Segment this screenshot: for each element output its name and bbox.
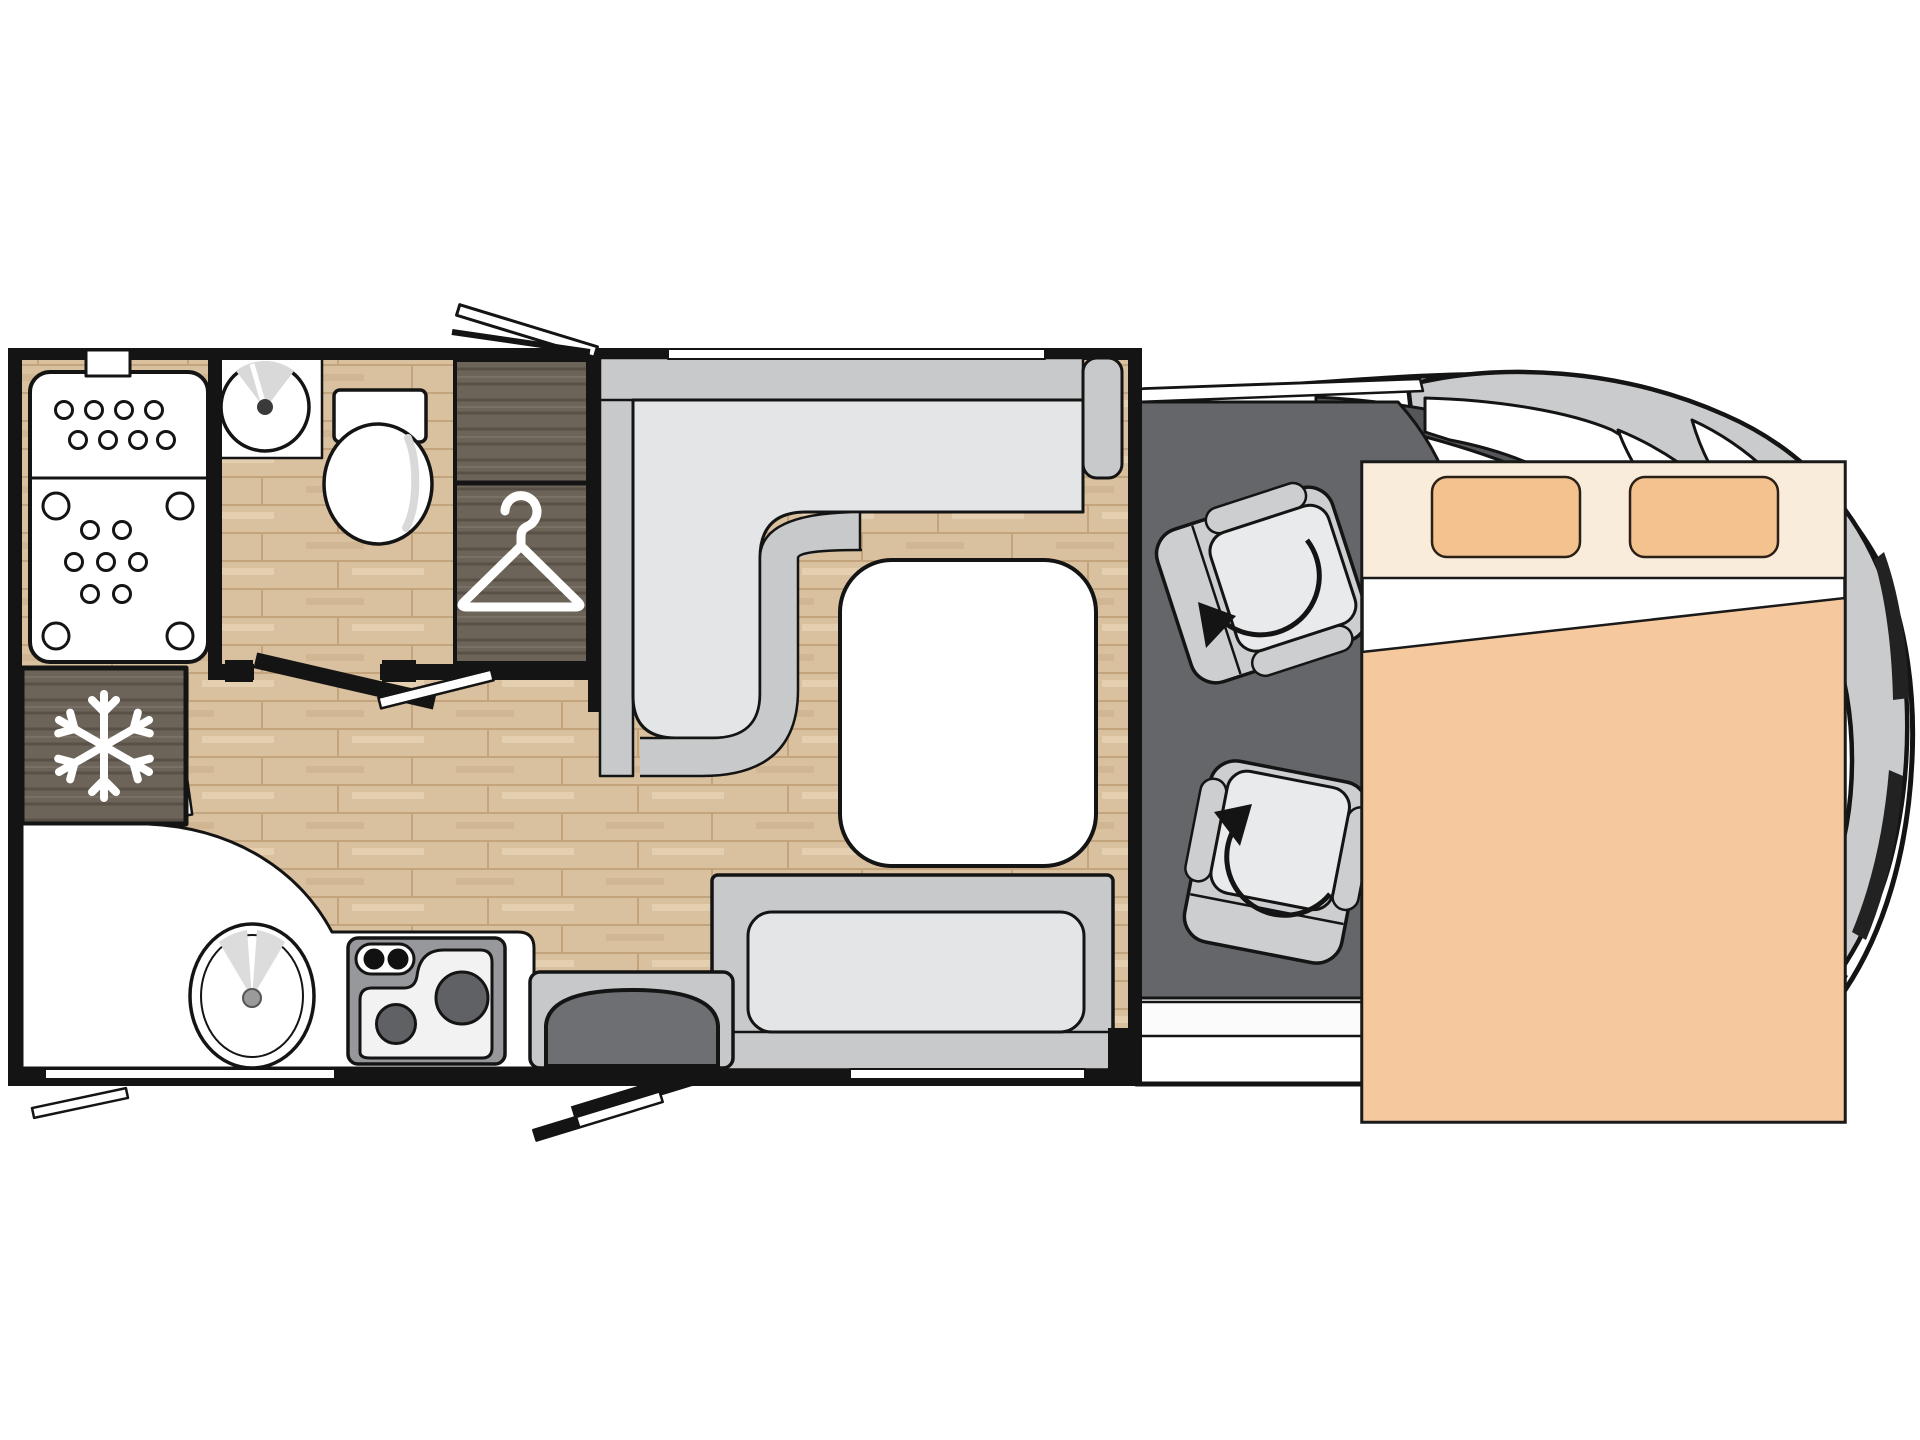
burner-large	[436, 972, 488, 1024]
shower-tap-notch	[86, 350, 130, 376]
floor-plan-page	[0, 0, 1920, 1440]
floor-plan-svg	[0, 0, 1920, 1440]
hob	[348, 938, 505, 1064]
bench-window	[850, 1069, 1085, 1079]
door-hinge-post	[225, 660, 253, 682]
bench-seat	[712, 875, 1113, 1070]
toilet	[324, 390, 432, 544]
drop-down-bed	[1362, 462, 1845, 1122]
dinette-table	[840, 560, 1096, 866]
basin-drain	[257, 399, 273, 415]
rocker-panel	[1136, 1002, 1362, 1036]
fridge	[22, 668, 186, 824]
sofa-backrest-strip	[600, 358, 633, 776]
duvet	[1362, 598, 1845, 1122]
kitchen-window	[45, 1069, 335, 1079]
washroom-divider-wall	[208, 348, 222, 668]
dinette-wall	[588, 348, 600, 712]
entry-step	[530, 972, 733, 1068]
sofa-armrest	[1083, 358, 1122, 478]
kitchen-sink	[190, 924, 314, 1068]
wardrobe	[455, 360, 588, 663]
wall-corner	[1108, 1028, 1136, 1086]
door-hinge-post	[382, 660, 416, 682]
lounge-window	[668, 349, 1045, 359]
pillow-left	[1432, 477, 1580, 557]
sofa-top-band	[600, 358, 1083, 400]
washbasin	[221, 361, 309, 451]
burner-small	[377, 1005, 416, 1044]
rear-window-marker	[32, 1088, 128, 1118]
pillow-right	[1630, 477, 1778, 557]
habitation-area	[8, 348, 1142, 1086]
